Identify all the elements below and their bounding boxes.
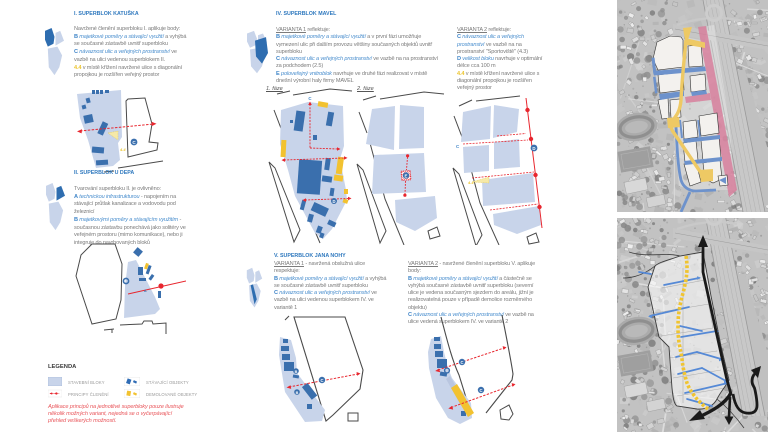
svg-text:4.4: 4.4 (119, 147, 126, 152)
svg-text:C: C (456, 144, 460, 149)
svg-text:4.4: 4.4 (467, 180, 474, 185)
svg-text:B: B (296, 391, 299, 395)
svg-text:A: A (144, 289, 147, 293)
svg-text:B: B (295, 370, 298, 374)
svg-text:D: D (332, 199, 335, 204)
svg-text:C: C (308, 96, 312, 101)
svg-text:E: E (405, 174, 408, 179)
svg-text:C: C (460, 360, 463, 365)
svg-text:D: D (532, 146, 535, 151)
svg-text:C: C (479, 388, 482, 393)
svg-text:C: C (320, 378, 323, 383)
